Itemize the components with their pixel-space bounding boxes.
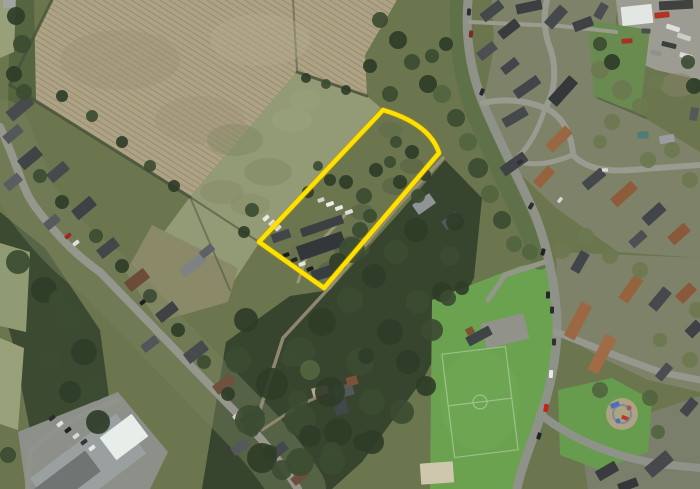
tree-66 xyxy=(405,145,419,159)
tree-118 xyxy=(221,387,235,401)
tree-3 xyxy=(308,308,336,336)
tree-125 xyxy=(245,203,259,217)
vehicle-29 xyxy=(549,370,554,378)
tree-101 xyxy=(604,54,620,70)
tree-80 xyxy=(553,241,571,259)
tree-87 xyxy=(682,352,698,368)
satellite-image xyxy=(0,0,700,489)
tree-6 xyxy=(384,240,408,264)
tree-1 xyxy=(256,368,288,400)
tree-71 xyxy=(411,189,425,203)
tree-78 xyxy=(640,152,656,168)
tree-16 xyxy=(359,389,385,415)
tree-90 xyxy=(592,382,608,398)
tree-93 xyxy=(300,360,320,380)
vehicle-27 xyxy=(550,306,554,313)
vehicle-43 xyxy=(621,38,632,44)
tree-28 xyxy=(6,250,30,274)
tree-124 xyxy=(455,281,469,295)
tree-25 xyxy=(416,376,436,396)
tree-17 xyxy=(396,350,420,374)
tree-98 xyxy=(281,349,299,367)
mottle-13 xyxy=(378,122,402,138)
tree-85 xyxy=(682,172,698,188)
tree-43 xyxy=(389,31,407,49)
mottle-1 xyxy=(244,158,292,186)
tree-51 xyxy=(447,109,465,127)
tree-96 xyxy=(322,442,342,462)
vehicle-42 xyxy=(641,28,650,33)
tree-83 xyxy=(632,262,648,278)
tree-82 xyxy=(602,248,618,264)
tree-84 xyxy=(664,142,680,158)
tree-36 xyxy=(59,381,81,403)
building-roof-54 xyxy=(638,132,649,139)
tree-47 xyxy=(363,59,377,73)
playground-surface xyxy=(606,398,638,430)
tree-94 xyxy=(288,390,308,410)
tree-99 xyxy=(358,348,374,364)
tree-110 xyxy=(301,73,311,83)
mottle-16 xyxy=(60,30,180,90)
tree-33 xyxy=(86,410,110,434)
tree-54 xyxy=(481,185,499,203)
tree-120 xyxy=(55,195,69,209)
tree-86 xyxy=(522,244,538,260)
mottle-2 xyxy=(272,108,312,132)
tree-91 xyxy=(642,390,658,406)
tree-27 xyxy=(234,308,258,332)
tree-121 xyxy=(33,169,47,183)
tree-106 xyxy=(86,110,98,122)
tree-56 xyxy=(506,236,522,252)
tree-109 xyxy=(168,180,180,192)
tree-35 xyxy=(39,349,61,371)
building-roof-69 xyxy=(621,4,654,26)
tree-76 xyxy=(648,74,664,90)
building-roof-34 xyxy=(3,0,15,8)
tree-11 xyxy=(377,319,403,345)
tree-77 xyxy=(604,114,620,130)
tree-100 xyxy=(272,460,292,480)
tree-107 xyxy=(116,136,128,148)
tree-12 xyxy=(406,290,430,314)
tree-115 xyxy=(143,289,157,303)
tree-40 xyxy=(6,66,22,82)
vehicle-33 xyxy=(602,168,608,172)
tree-92 xyxy=(651,425,665,439)
tree-63 xyxy=(384,156,396,168)
tree-49 xyxy=(439,37,453,51)
tree-38 xyxy=(7,7,25,25)
tree-37 xyxy=(0,447,16,463)
tree-34 xyxy=(49,289,71,311)
mottle-15 xyxy=(185,273,225,297)
tree-75 xyxy=(632,98,648,114)
vehicle-21 xyxy=(467,8,472,15)
aerial-photo-frame xyxy=(0,0,700,489)
tree-52 xyxy=(459,133,477,151)
tree-123 xyxy=(440,290,456,306)
tree-88 xyxy=(653,333,667,347)
tree-67 xyxy=(363,209,377,223)
tree-104 xyxy=(681,55,695,69)
tree-9 xyxy=(315,377,345,407)
tree-48 xyxy=(425,49,439,63)
vehicle-26 xyxy=(546,291,550,298)
tree-7 xyxy=(404,218,428,242)
tree-69 xyxy=(313,161,323,171)
tree-31 xyxy=(71,339,97,365)
tree-20 xyxy=(440,246,460,266)
tree-4 xyxy=(337,287,363,313)
tree-32 xyxy=(81,375,107,401)
mottle-17 xyxy=(210,14,310,66)
mottle-18 xyxy=(155,96,245,144)
tree-114 xyxy=(115,259,129,273)
tree-102 xyxy=(593,37,607,51)
tree-18 xyxy=(421,319,443,341)
map-layers xyxy=(0,0,700,489)
tree-53 xyxy=(468,158,488,178)
tree-61 xyxy=(356,188,372,204)
tree-55 xyxy=(493,211,511,229)
tree-60 xyxy=(339,175,353,189)
tree-112 xyxy=(341,85,351,95)
tree-26 xyxy=(225,347,251,373)
mottle-4 xyxy=(289,90,321,110)
vehicle-28 xyxy=(552,338,556,345)
tree-65 xyxy=(390,136,402,148)
tree-41 xyxy=(16,84,32,100)
tree-97 xyxy=(353,433,371,451)
tree-50 xyxy=(433,85,451,103)
tree-68 xyxy=(324,174,336,186)
tree-39 xyxy=(13,35,31,53)
tree-117 xyxy=(197,355,211,369)
tree-126 xyxy=(238,226,250,238)
tree-44 xyxy=(404,54,420,70)
tree-119 xyxy=(245,423,259,437)
tree-79 xyxy=(593,135,607,149)
tree-46 xyxy=(382,86,398,102)
building-roof-70 xyxy=(659,0,693,10)
tree-62 xyxy=(369,163,383,177)
tree-81 xyxy=(578,228,594,244)
tree-122 xyxy=(263,445,277,459)
tree-113 xyxy=(89,229,103,243)
tree-95 xyxy=(299,425,321,447)
tree-108 xyxy=(144,160,156,172)
tree-105 xyxy=(56,90,68,102)
building-roof-30 xyxy=(420,461,454,484)
tree-42 xyxy=(372,12,388,28)
tree-21 xyxy=(446,213,464,231)
tree-111 xyxy=(321,79,331,89)
tree-15 xyxy=(324,418,352,446)
vehicle-22 xyxy=(469,30,474,37)
tree-24 xyxy=(390,400,414,424)
tree-74 xyxy=(612,80,632,100)
playground xyxy=(606,398,638,430)
tree-116 xyxy=(171,323,185,337)
tree-5 xyxy=(362,264,386,288)
tree-64 xyxy=(393,175,407,189)
